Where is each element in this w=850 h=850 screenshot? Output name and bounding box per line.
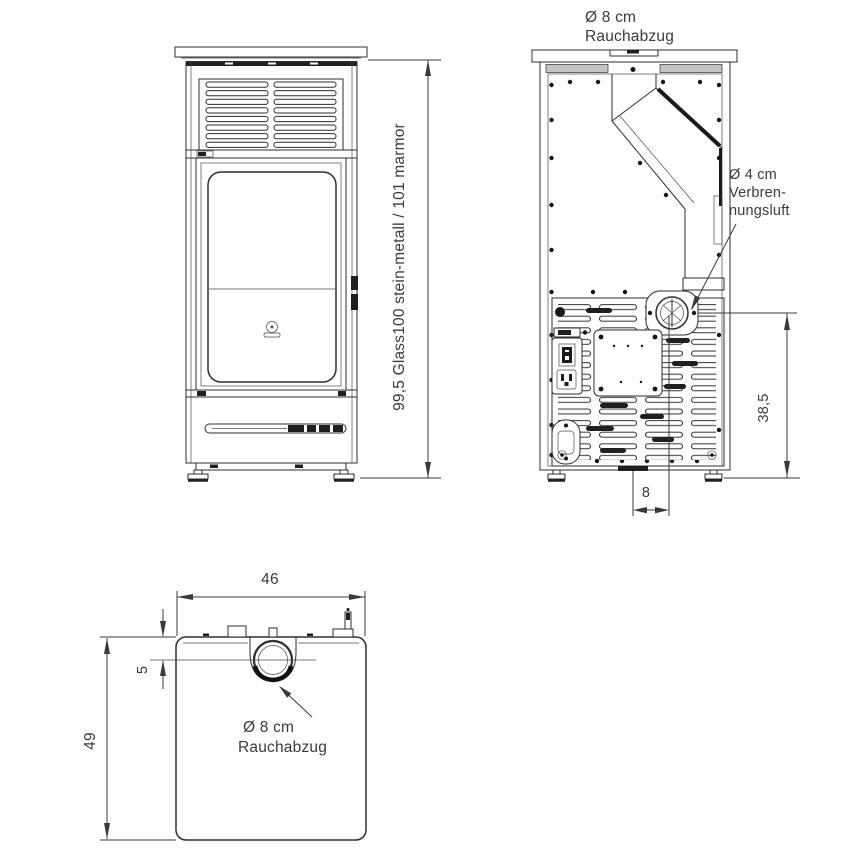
front-height-dimension: 99,5 Glass100 stein-metall / 101 marmor [360, 60, 441, 478]
top-view: 46 [82, 571, 366, 840]
front-feet [188, 470, 354, 481]
top-edge-fitting-left [228, 626, 246, 637]
front-height-label: 99,5 Glass100 stein-metall / 101 marmor [391, 123, 408, 411]
svg-text:Ø 8 cm: Ø 8 cm [585, 9, 636, 26]
top-flue-label: Ø 8 cm Rauchabzug [238, 686, 327, 756]
svg-text:38,5: 38,5 [756, 393, 772, 422]
technical-drawing: 99,5 Glass100 stein-metall / 101 marmor … [0, 0, 850, 850]
brand-emblem-icon [264, 322, 280, 338]
rear-knob [555, 307, 565, 317]
front-glass-door [196, 158, 358, 390]
svg-text:5: 5 [135, 666, 151, 674]
stove-dimension-drawing: 99,5 Glass100 stein-metall / 101 marmor … [0, 0, 850, 850]
front-view: 99,5 Glass100 stein-metall / 101 marmor [175, 47, 441, 481]
combustion-air-label: Ø 4 cm Verbren- nungsluft [691, 167, 790, 310]
svg-text:46: 46 [261, 571, 279, 588]
door-latch [351, 276, 358, 290]
front-vent-grille [199, 79, 343, 150]
rear-view: Ø 8 cm Rauchabzug [532, 9, 800, 516]
svg-text:8: 8 [642, 485, 650, 501]
svg-text:nungsluft: nungsluft [729, 203, 790, 219]
rear-feet [548, 470, 722, 481]
bottom-fitting [618, 466, 648, 471]
svg-text:Ø 4 cm: Ø 4 cm [729, 167, 777, 183]
front-drawer-handle [205, 424, 346, 433]
front-body [186, 62, 357, 463]
rear-access-plate [594, 330, 662, 396]
svg-text:Verbren-: Verbren- [729, 185, 786, 201]
width-dimension: 46 [177, 571, 365, 636]
svg-text:49: 49 [82, 732, 99, 750]
flue-inset-dimension: 5 [135, 609, 166, 689]
power-connector [552, 420, 580, 464]
svg-text:Rauchabzug: Rauchabzug [238, 739, 327, 756]
front-top-panel [175, 47, 367, 57]
combustion-air-inlet [646, 291, 698, 335]
svg-text:Ø 8 cm: Ø 8 cm [243, 719, 294, 736]
svg-text:Rauchabzug: Rauchabzug [585, 28, 674, 45]
rear-flue-label: Ø 8 cm Rauchabzug [585, 9, 674, 45]
top-flue-outlet [250, 628, 296, 681]
rear-flue-duct [612, 74, 724, 290]
top-edge-fitting-right [333, 608, 353, 637]
